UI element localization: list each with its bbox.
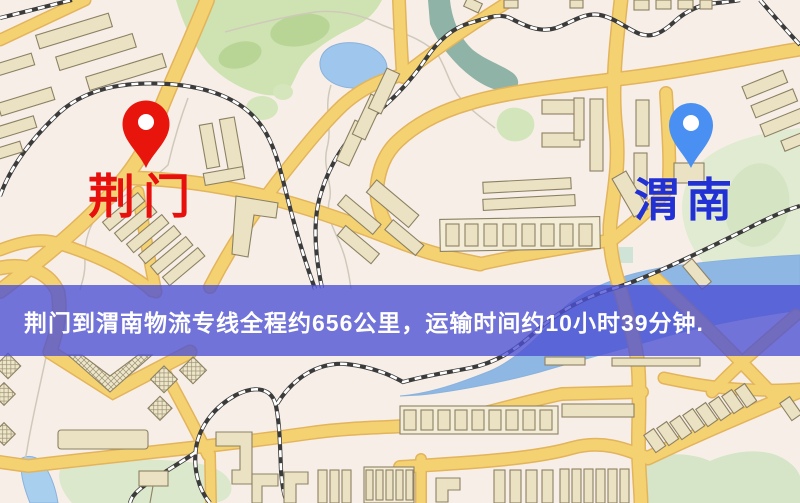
- route-info-banner: 荆门到渭南物流专线全程约656公里，运输时间约10小时39分钟.: [0, 285, 800, 356]
- destination-city-label: 渭南: [634, 177, 738, 223]
- origin-city-label: 荆门: [88, 173, 198, 220]
- route-info-text: 荆门到渭南物流专线全程约656公里，运输时间约10小时39分钟.: [0, 304, 704, 338]
- map-canvas: [0, 0, 800, 503]
- map-view: 荆门 渭南 荆门到渭南物流专线全程约656公里，运输时间约10小时39分钟.: [0, 0, 800, 503]
